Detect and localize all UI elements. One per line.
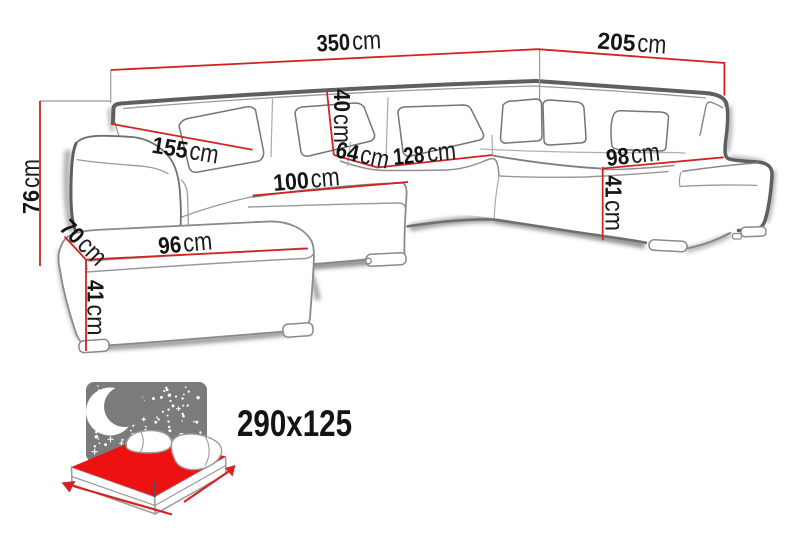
svg-text:76cm: 76cm — [15, 159, 45, 214]
svg-text:41cm: 41cm — [82, 280, 112, 336]
svg-text:40cm: 40cm — [328, 89, 358, 143]
svg-text:290x125: 290x125 — [237, 403, 352, 444]
svg-text:350cm: 350cm — [316, 24, 382, 57]
svg-text:41cm: 41cm — [600, 176, 630, 232]
